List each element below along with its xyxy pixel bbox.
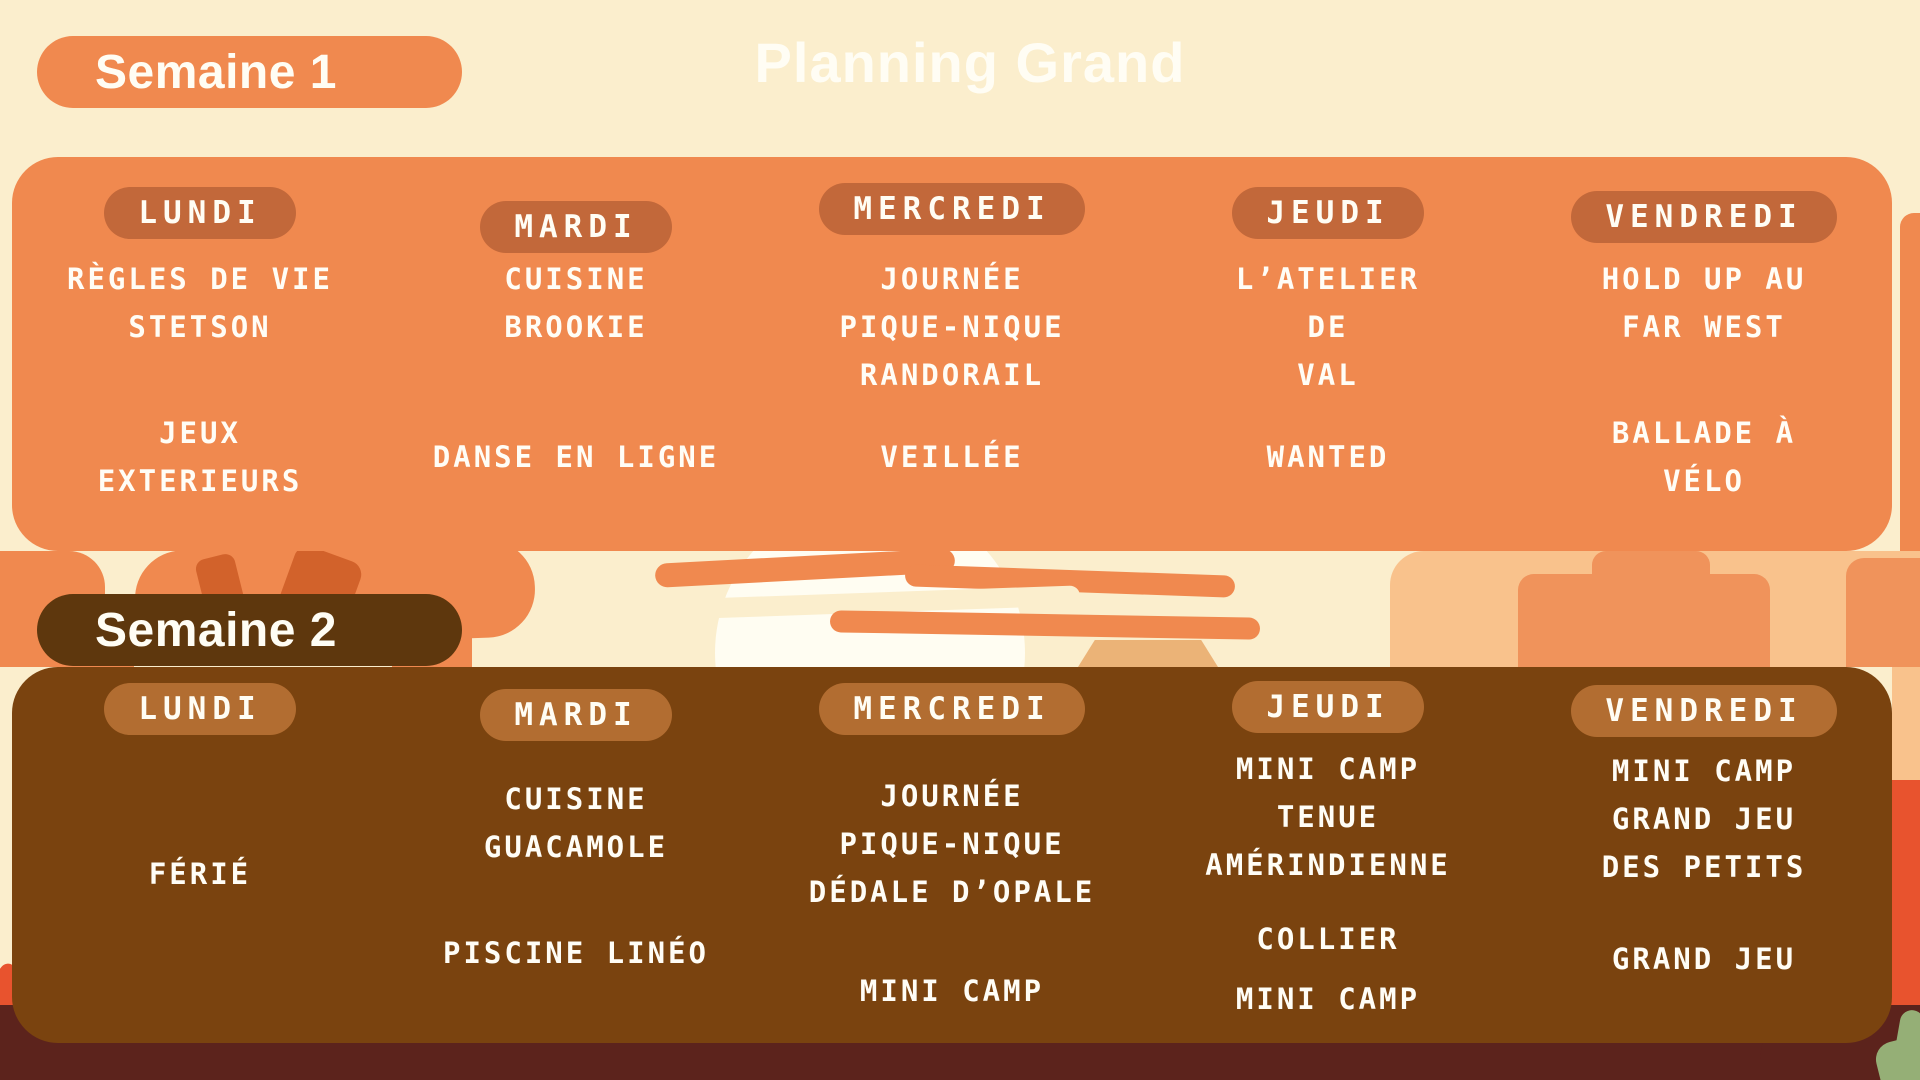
activity-text: L’ATELIER DE VAL xyxy=(1144,255,1512,399)
day-column-lundi: LUNDI RÈGLES DE VIE STETSON JEUX EXTERIE… xyxy=(12,157,388,551)
mesa-illustration xyxy=(1846,558,1920,667)
activity-text: MINI CAMP xyxy=(768,967,1136,1015)
mesa-illustration xyxy=(1078,640,1218,667)
week-1-panel: LUNDI RÈGLES DE VIE STETSON JEUX EXTERIE… xyxy=(12,157,1892,551)
activity-text: COLLIER xyxy=(1144,915,1512,963)
day-column-mardi: MARDI CUISINE GUACAMOLE PISCINE LINÉO xyxy=(388,667,764,1043)
day-column-jeudi: JEUDI MINI CAMP TENUE AMÉRINDIENNE COLLI… xyxy=(1140,667,1516,1043)
activity-text: CUISINE BROOKIE xyxy=(392,255,760,351)
activity-text: PISCINE LINÉO xyxy=(392,929,760,977)
mesa-illustration xyxy=(1900,213,1920,551)
day-badge: MERCREDI xyxy=(819,183,1084,235)
day-badge: LUNDI xyxy=(104,187,295,239)
activity-text: FÉRIÉ xyxy=(16,850,384,898)
activity-text: RÈGLES DE VIE STETSON xyxy=(16,255,384,351)
activity-text: JEUX EXTERIEURS xyxy=(16,395,384,519)
activity-text: CUISINE GUACAMOLE xyxy=(392,775,760,871)
page-title: Planning Grand xyxy=(0,30,1920,95)
day-column-jeudi: JEUDI L’ATELIER DE VAL WANTED xyxy=(1140,157,1516,551)
activity-text: MINI CAMP GRAND JEU DES PETITS xyxy=(1520,747,1888,891)
activity-text: HOLD UP AU FAR WEST xyxy=(1520,255,1888,351)
activity-text: JOURNÉE PIQUE-NIQUE DÉDALE D’OPALE xyxy=(768,772,1136,916)
activity-text: DANSE EN LIGNE xyxy=(392,395,760,519)
activity-text: VEILLÉE xyxy=(768,395,1136,519)
day-column-mercredi: MERCREDI JOURNÉE PIQUE-NIQUE DÉDALE D’OP… xyxy=(764,667,1140,1043)
week-2-panel: LUNDI FÉRIÉ MARDI CUISINE GUACAMOLE PISC… xyxy=(12,667,1892,1043)
planning-poster: Semaine 1 Planning Grand LUNDI RÈGLES DE… xyxy=(0,0,1920,1080)
day-column-mardi: MARDI CUISINE BROOKIE DANSE EN LIGNE xyxy=(388,157,764,551)
day-badge: JEUDI xyxy=(1232,187,1423,239)
day-column-mercredi: MERCREDI JOURNÉE PIQUE-NIQUE RANDORAIL V… xyxy=(764,157,1140,551)
activity-text: GRAND JEU xyxy=(1520,935,1888,983)
week-2-badge: Semaine 2 xyxy=(37,594,462,666)
day-column-lundi: LUNDI FÉRIÉ xyxy=(12,667,388,1043)
day-badge: MARDI xyxy=(480,689,671,741)
day-column-vendredi: VENDREDI HOLD UP AU FAR WEST BALLADE À V… xyxy=(1516,157,1892,551)
activity-text: JOURNÉE PIQUE-NIQUE RANDORAIL xyxy=(768,255,1136,399)
mesa-illustration xyxy=(1518,574,1770,667)
day-badge: MARDI xyxy=(480,201,671,253)
day-badge: MERCREDI xyxy=(819,683,1084,735)
day-badge: VENDREDI xyxy=(1571,685,1836,737)
activity-text: MINI CAMP xyxy=(1144,975,1512,1023)
activity-text: MINI CAMP TENUE AMÉRINDIENNE xyxy=(1144,745,1512,889)
day-badge: VENDREDI xyxy=(1571,191,1836,243)
activity-text: BALLADE À VÉLO xyxy=(1520,395,1888,519)
activity-text: WANTED xyxy=(1144,395,1512,519)
day-badge: JEUDI xyxy=(1232,681,1423,733)
day-column-vendredi: VENDREDI MINI CAMP GRAND JEU DES PETITS … xyxy=(1516,667,1892,1043)
day-badge: LUNDI xyxy=(104,683,295,735)
